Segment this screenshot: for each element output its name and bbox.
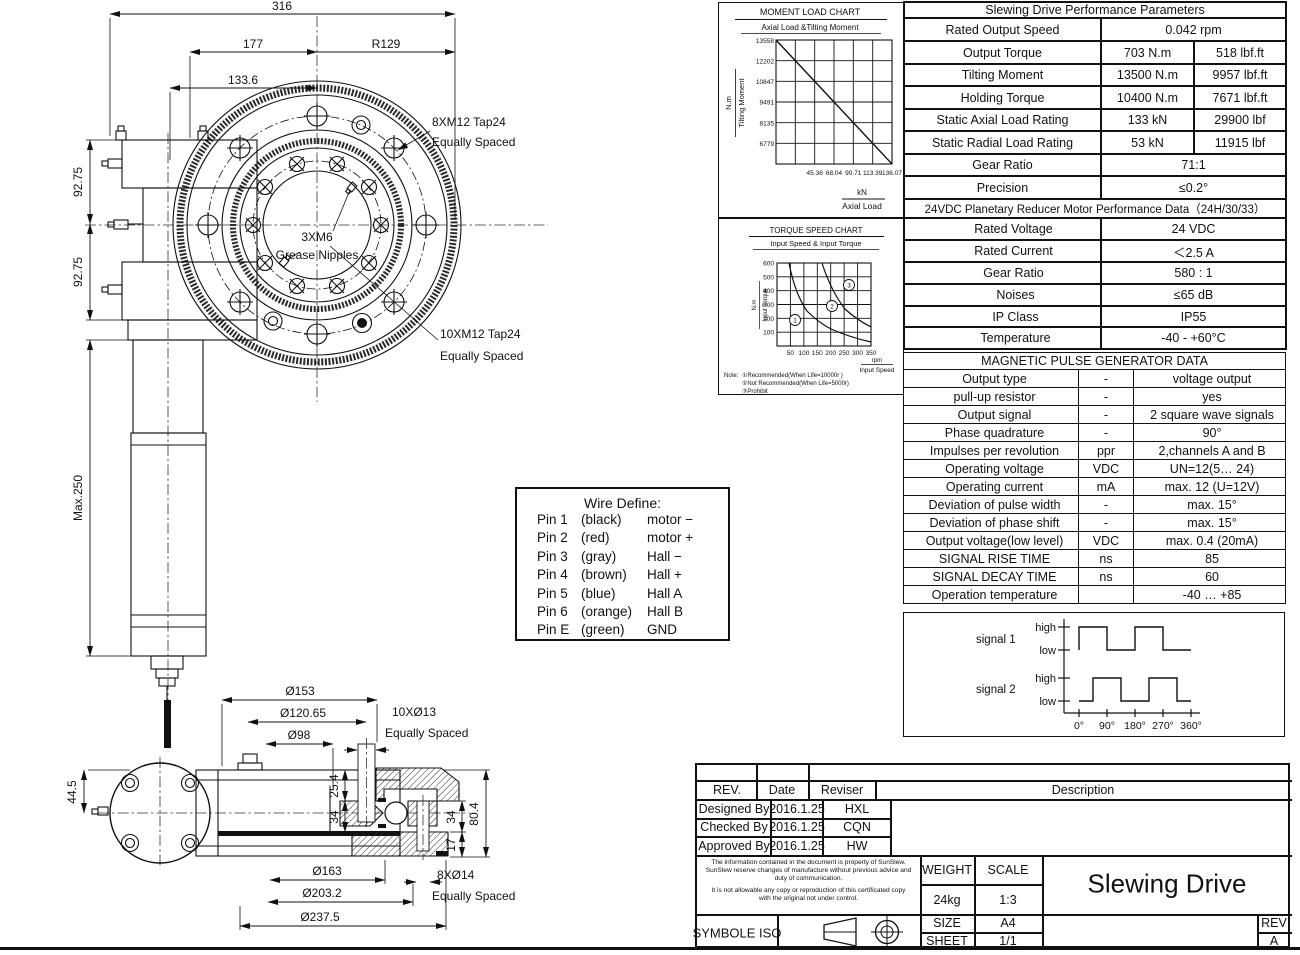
weight-label: WEIGHT <box>922 863 972 877</box>
label-8xd14: 8XØ14 <box>437 868 475 882</box>
svg-text:1: 1 <box>793 318 797 325</box>
checked-name: CQN <box>843 820 871 834</box>
dim-92-75-upper: 92.75 <box>71 167 85 197</box>
row-value: 24 VDC <box>1101 218 1286 240</box>
chart-subtitle: Input Speed & Input Torque <box>770 239 861 248</box>
signal-diagram: signal 1 signal 2 high low high low 0° <box>903 612 1285 737</box>
symbole-iso-label: SYMBOLE ISO <box>693 926 782 941</box>
row-value: ＜2.5 A <box>1101 240 1286 262</box>
label-10xm12-spacing: Equally Spaced <box>440 349 523 363</box>
degree-tick-labels: 0° 90° 180° 270° 360° <box>1074 720 1202 732</box>
approved-by-label: Approved By <box>698 839 770 853</box>
svg-text:136.07: 136.07 <box>882 170 902 177</box>
pin-signal: Hall + <box>647 566 682 584</box>
svg-text:low: low <box>1039 645 1056 657</box>
pin-signal: motor + <box>647 529 693 547</box>
wire-pin-row: Pin 1(black)motor − <box>517 511 728 529</box>
svg-text:3: 3 <box>847 283 851 290</box>
row-value: voltage output <box>1134 370 1286 388</box>
moment-load-chart: MOMENT LOAD CHART Axial Load &Tilting Mo… <box>718 2 904 218</box>
svg-text:6779: 6779 <box>760 141 775 148</box>
approved-date: 2016.1.25 <box>769 839 825 853</box>
row-label: Noises <box>904 284 1101 306</box>
row-unit: - <box>1079 496 1134 514</box>
title-block: REV. Date Reviser Description Designed B… <box>695 763 1290 948</box>
y-tick-labels: 13558 12202 10847 9491 8135 6779 <box>756 38 774 148</box>
svg-text:100: 100 <box>798 350 809 357</box>
dim-25-4: 25.4 <box>327 774 341 798</box>
row-value: -40 - +60°C <box>1101 327 1286 349</box>
pin-color: (black) <box>581 511 647 529</box>
label-8xm12-spacing: Equally Spaced <box>432 135 515 149</box>
row-unit: mA <box>1079 478 1134 496</box>
svg-text:250: 250 <box>839 350 850 357</box>
label-10xd13-spacing: Equally Spaced <box>385 726 468 740</box>
row-label: Rated Output Speed <box>904 18 1101 41</box>
wire-pin-row: Pin 4(brown)Hall + <box>517 566 728 584</box>
motor-performance-table: 24VDC Planetary Reducer Motor Performanc… <box>903 198 1287 350</box>
dim-177: 177 <box>243 37 263 51</box>
row-param: Deviation of pulse width <box>904 496 1079 514</box>
row-value: -40 … +85 <box>1134 586 1286 604</box>
wire-pin-row: Pin E(green)GND <box>517 621 728 639</box>
row-label: Holding Torque <box>904 86 1101 109</box>
x-tick-labels: 45.36 68.04 90.71 113.39 136.07 <box>807 170 902 177</box>
sheet-label: SHEET <box>926 934 968 948</box>
svg-text:300: 300 <box>763 302 774 309</box>
row-imperial: 518 lbf.ft <box>1194 41 1286 64</box>
row-label: Output Torque <box>904 41 1101 64</box>
weight-value: 24kg <box>933 893 960 907</box>
pulse-generator-table: MAGNETIC PULSE GENERATOR DATA Output typ… <box>903 352 1286 604</box>
dim-316: 316 <box>272 0 292 13</box>
dim-44-5: 44.5 <box>65 780 79 804</box>
svg-text:2: 2 <box>830 304 834 311</box>
row-label: Temperature <box>904 327 1101 349</box>
bearing-ball <box>385 802 407 824</box>
x-axis-unit: kN <box>857 188 867 197</box>
pin-number: Pin E <box>537 621 581 639</box>
label-8xd14-spacing: Equally Spaced <box>432 889 515 903</box>
row-imperial: 7671 lbf.ft <box>1194 86 1286 109</box>
row-unit: VDC <box>1079 460 1134 478</box>
scale-value: 1:3 <box>999 893 1016 907</box>
dim-r129: R129 <box>372 37 401 51</box>
pin-signal: motor − <box>647 511 693 529</box>
svg-text:9491: 9491 <box>760 100 775 107</box>
svg-text:②Not Recommended(When Life=500: ②Not Recommended(When Life=5000r) <box>742 380 849 387</box>
pin-number: Pin 3 <box>537 548 581 566</box>
row-metric: 133 kN <box>1101 109 1194 131</box>
row-value: max. 15° <box>1134 514 1286 532</box>
signal-1-label: signal 1 <box>976 634 1016 646</box>
row-imperial: 9957 lbf.ft <box>1194 64 1286 86</box>
pin-number: Pin 2 <box>537 529 581 547</box>
row-unit: - <box>1079 370 1134 388</box>
row-label: Static Radial Load Rating <box>904 131 1101 154</box>
row-value: 2,channels A and B <box>1134 442 1286 460</box>
row-unit: ns <box>1079 568 1134 586</box>
y-axis-unit: N.m <box>724 96 733 110</box>
disclaimer-text-2: It is not allowable any copy or reproduc… <box>707 887 910 903</box>
pin-number: Pin 6 <box>537 603 581 621</box>
row-param: Operation temperature <box>904 586 1079 604</box>
motor-cable <box>164 700 171 748</box>
row-value: 580 : 1 <box>1101 262 1286 284</box>
row-value: UN=12(5… 24) <box>1134 460 1286 478</box>
row-param: SIGNAL RISE TIME <box>904 550 1079 568</box>
row-metric: 53 kN <box>1101 131 1194 154</box>
svg-text:low: low <box>1039 696 1056 708</box>
chart-note: Note: ①Recommended(When Life=10000r ) ②N… <box>724 372 849 393</box>
svg-text:50: 50 <box>787 350 795 357</box>
designed-by-label: Designed By <box>699 802 770 816</box>
row-unit: ns <box>1079 550 1134 568</box>
motor-body <box>131 340 206 748</box>
checked-date: 2016.1.25 <box>769 820 825 834</box>
row-param: Deviation of phase shift <box>904 514 1079 532</box>
row-param: Operating current <box>904 478 1079 496</box>
label-10xm12: 10XM12 Tap24 <box>440 327 521 341</box>
reviser-col-header: Reviser <box>821 783 863 797</box>
dim-d237-5: Ø237.5 <box>300 910 340 924</box>
drawing-sheet: 316 177 R129 133.6 92.75 92.75 Max.250 <box>0 0 1300 955</box>
pin-number: Pin 4 <box>537 566 581 584</box>
svg-text:180°: 180° <box>1124 720 1146 732</box>
row-value: 71:1 <box>1101 154 1286 176</box>
pin-signal: Hall A <box>647 585 682 603</box>
row-label: Tilting Moment <box>904 64 1101 86</box>
row-value: ≤0.2° <box>1101 176 1286 199</box>
wire-pin-row: Pin 3(gray)Hall − <box>517 548 728 566</box>
dim-34-left: 34 <box>327 810 341 824</box>
label-8xm12: 8XM12 Tap24 <box>432 115 506 129</box>
row-label: Static Axial Load Rating <box>904 109 1101 131</box>
label-10xd13: 10XØ13 <box>392 705 436 719</box>
row-value: 0.042 rpm <box>1101 18 1286 41</box>
svg-text:Note:: Note: <box>724 373 739 379</box>
y-axis-label: Tilting Moment <box>737 78 746 128</box>
row-metric: 10400 N.m <box>1101 86 1194 109</box>
row-label: Rated Current <box>904 240 1101 262</box>
row-metric: 703 N.m <box>1101 41 1194 64</box>
side-section-view: Ø153 Ø120.65 Ø98 10XØ13 Equally Spaced 4… <box>65 684 515 930</box>
top-view-dimensions: 316 177 R129 133.6 92.75 92.75 Max.250 <box>71 0 455 656</box>
svg-text:high: high <box>1035 673 1056 685</box>
pin-number: Pin 1 <box>537 511 581 529</box>
dim-92-75-lower: 92.75 <box>71 257 85 287</box>
row-unit: - <box>1079 424 1134 442</box>
rev-label: REV <box>1261 916 1287 930</box>
svg-text:0°: 0° <box>1074 720 1084 732</box>
svg-text:10847: 10847 <box>756 79 774 86</box>
wire-pin-row: Pin 5(blue)Hall A <box>517 585 728 603</box>
wire-define-title: Wire Define: <box>517 489 728 511</box>
label-3xm6: 3XM6 <box>301 230 333 244</box>
svg-text:500: 500 <box>763 274 774 281</box>
chart-subtitle: Axial Load &Tilting Moment <box>761 23 859 32</box>
row-value: max. 0.4 (20mA) <box>1134 532 1286 550</box>
wire-pin-row: Pin 6(orange)Hall B <box>517 603 728 621</box>
chart-grid <box>777 263 871 346</box>
performance-table: Slewing Drive Performance Parameters Rat… <box>903 1 1287 200</box>
row-value: 85 <box>1134 550 1286 568</box>
svg-text:13558: 13558 <box>756 38 774 45</box>
svg-text:③Prohibit: ③Prohibit <box>742 388 768 393</box>
x-tick-labels: 50 100 150 200 250 300 350 <box>787 350 877 357</box>
svg-text:high: high <box>1035 622 1056 634</box>
rev-col-header: REV. <box>713 783 741 797</box>
svg-text:90.71: 90.71 <box>845 170 862 177</box>
row-param: Output type <box>904 370 1079 388</box>
row-param: SIGNAL DECAY TIME <box>904 568 1079 586</box>
row-param: Impulses per revolution <box>904 442 1079 460</box>
x-axis-label: Input Speed <box>859 367 894 374</box>
svg-text:①Recommended(When Life=10000r: ①Recommended(When Life=10000r ) <box>742 372 843 379</box>
row-label: Gear Ratio <box>904 262 1101 284</box>
row-value: max. 12 (U=12V) <box>1134 478 1286 496</box>
drawing-title: Slewing Drive <box>1088 869 1247 900</box>
sheet-value: 1/1 <box>999 934 1016 948</box>
dim-34-right: 34 <box>444 810 458 824</box>
pin-signal: Hall B <box>647 603 683 621</box>
dim-d163: Ø163 <box>312 864 342 878</box>
wire-pin-row: Pin 2(red)motor + <box>517 529 728 547</box>
chart-title: TORQUE SPEED CHART <box>769 226 862 235</box>
table-title: Slewing Drive Performance Parameters <box>904 2 1286 18</box>
svg-text:350: 350 <box>866 350 877 357</box>
svg-text:300: 300 <box>852 350 863 357</box>
pin-color: (gray) <box>581 548 647 566</box>
table-title: MAGNETIC PULSE GENERATOR DATA <box>904 353 1286 370</box>
x-axis-unit: rpm <box>872 358 882 364</box>
svg-text:600: 600 <box>763 261 774 268</box>
row-label: IP Class <box>904 306 1101 327</box>
wire-define-box: Wire Define: Pin 1(black)motor − Pin 2(r… <box>515 487 730 641</box>
svg-text:113.39: 113.39 <box>863 170 883 177</box>
pin-signal: Hall − <box>647 548 682 566</box>
svg-text:360°: 360° <box>1180 720 1202 732</box>
row-unit: - <box>1079 406 1134 424</box>
svg-text:90°: 90° <box>1099 720 1115 732</box>
pin-color: (green) <box>581 621 647 639</box>
approved-name: HW <box>847 839 868 853</box>
row-param: Operating voltage <box>904 460 1079 478</box>
date-col-header: Date <box>769 783 795 797</box>
pin-number: Pin 5 <box>537 585 581 603</box>
y-axis-unit: N.m <box>752 300 758 311</box>
row-param: Output voltage(low level) <box>904 532 1079 550</box>
torque-curve-2 <box>822 263 871 327</box>
side-view-dimensions: Ø153 Ø120.65 Ø98 10XØ13 Equally Spaced 4… <box>65 684 515 930</box>
row-unit: - <box>1079 514 1134 532</box>
dim-d153: Ø153 <box>285 684 315 698</box>
row-value: IP55 <box>1101 306 1286 327</box>
row-value: 90° <box>1134 424 1286 442</box>
svg-text:68.04: 68.04 <box>826 170 843 177</box>
row-unit <box>1079 586 1134 604</box>
table-title: 24VDC Planetary Reducer Motor Performanc… <box>904 199 1286 218</box>
x-axis-label: Axial Load <box>842 201 882 211</box>
top-view-drawing: 316 177 R129 133.6 92.75 92.75 Max.250 <box>71 0 548 752</box>
row-unit: ppr <box>1079 442 1134 460</box>
signal-1-wave <box>1079 627 1191 650</box>
scale-label: SCALE <box>988 863 1029 877</box>
size-label: SIZE <box>933 916 961 930</box>
pin-signal: GND <box>647 621 677 639</box>
row-value: 2 square wave signals <box>1134 406 1286 424</box>
cad-line-art: 316 177 R129 133.6 92.75 92.75 Max.250 <box>0 0 710 955</box>
dim-max-250: Max.250 <box>71 475 85 521</box>
svg-text:270°: 270° <box>1152 720 1174 732</box>
dim-80-4: 80.4 <box>467 802 481 826</box>
svg-text:150: 150 <box>812 350 823 357</box>
row-label: Gear Ratio <box>904 154 1101 176</box>
row-value: yes <box>1134 388 1286 406</box>
svg-text:12202: 12202 <box>756 59 774 66</box>
svg-text:8135: 8135 <box>760 121 775 128</box>
dim-133-6: 133.6 <box>228 73 258 87</box>
svg-text:200: 200 <box>825 350 836 357</box>
pin-color: (blue) <box>581 585 647 603</box>
row-param: Output signal <box>904 406 1079 424</box>
row-label: Rated Voltage <box>904 218 1101 240</box>
designed-date: 2016.1.25 <box>769 802 825 816</box>
pin-color: (orange) <box>581 603 647 621</box>
row-value: ≤65 dB <box>1101 284 1286 306</box>
pin-color: (red) <box>581 529 647 547</box>
svg-text:45.36: 45.36 <box>807 170 824 177</box>
pin-color: (brown) <box>581 566 647 584</box>
dim-17: 17 <box>444 838 458 852</box>
sheet-border-line <box>0 947 1300 950</box>
checked-by-label: Checked By <box>700 820 767 834</box>
size-value: A4 <box>1000 916 1015 930</box>
dim-d120-65: Ø120.65 <box>280 706 326 720</box>
dim-d98: Ø98 <box>288 728 311 742</box>
signal-2-label: signal 2 <box>976 684 1016 696</box>
row-label: Precision <box>904 176 1101 199</box>
chart-title: MOMENT LOAD CHART <box>760 7 861 17</box>
svg-text:400: 400 <box>763 288 774 295</box>
description-col-header: Description <box>1052 783 1115 797</box>
row-imperial: 11915 lbf <box>1194 131 1286 154</box>
level-labels: high low high low <box>1035 622 1056 708</box>
signal-2-wave <box>1079 678 1191 701</box>
row-value: 60 <box>1134 568 1286 586</box>
row-param: pull-up resistor <box>904 388 1079 406</box>
svg-text:100: 100 <box>763 330 774 337</box>
row-unit: VDC <box>1079 532 1134 550</box>
row-metric: 13500 N.m <box>1101 64 1194 86</box>
designed-name: HXL <box>845 802 869 816</box>
row-value: max. 15° <box>1134 496 1286 514</box>
torque-speed-chart: TORQUE SPEED CHART Input Speed & Input T… <box>718 218 904 395</box>
row-param: Phase quadrature <box>904 424 1079 442</box>
row-imperial: 29900 lbf <box>1194 109 1286 131</box>
disclaimer-text-1: The information contained in the documen… <box>701 859 916 884</box>
first-angle-projection-icon <box>792 915 917 949</box>
rev-value: A <box>1270 934 1278 948</box>
dim-d203-2: Ø203.2 <box>302 886 342 900</box>
svg-text:200: 200 <box>763 316 774 323</box>
row-unit: - <box>1079 388 1134 406</box>
